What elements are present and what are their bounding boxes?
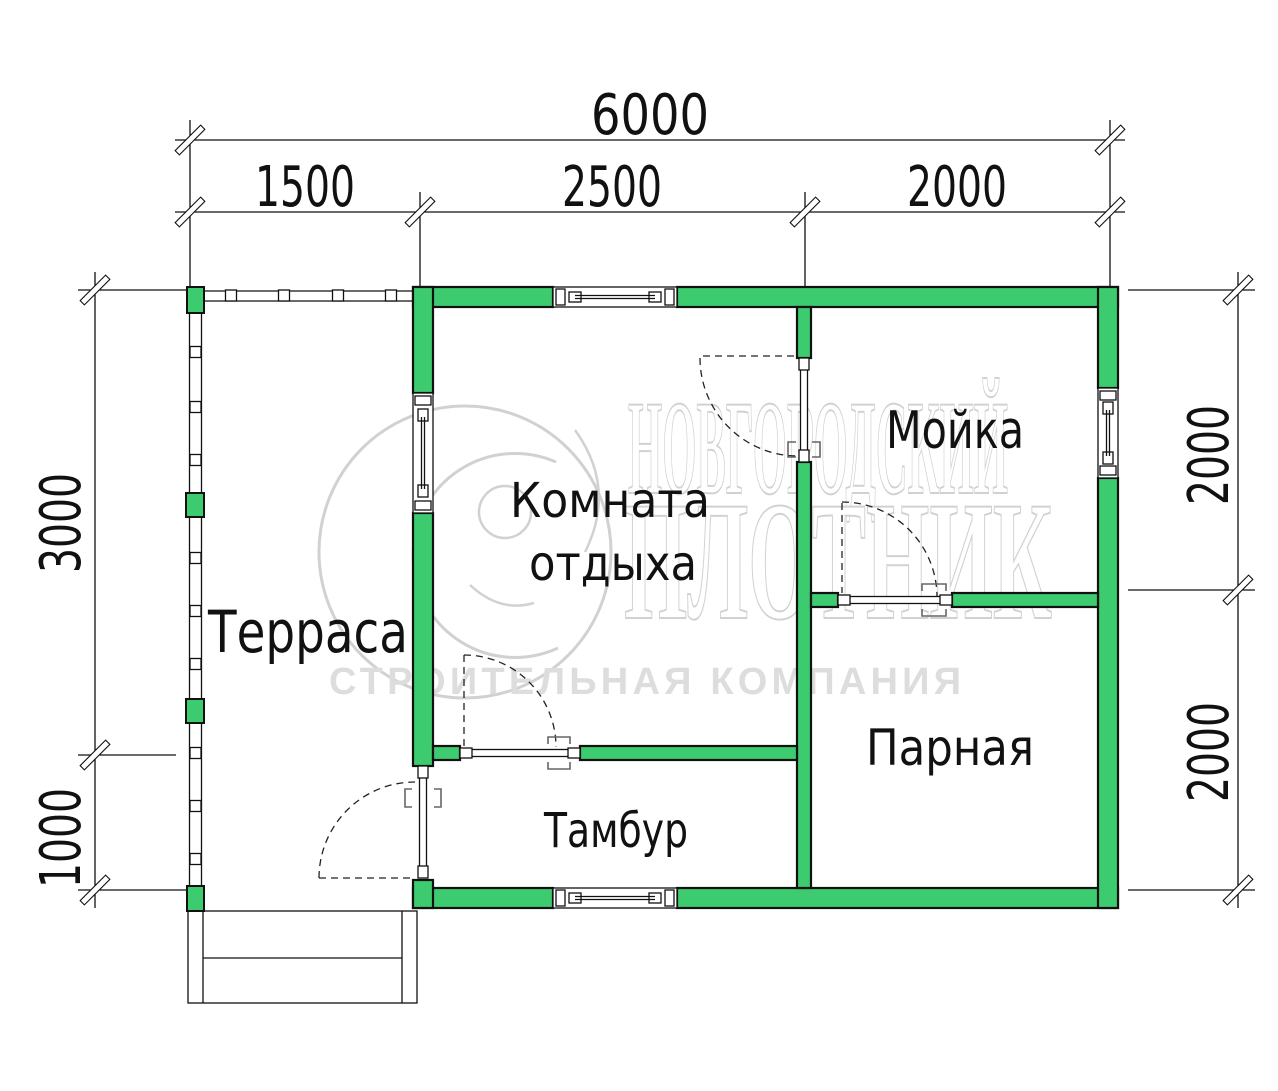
door-entry	[319, 766, 441, 878]
railing-post	[187, 886, 204, 911]
dimension-top: 6000 1500 2500 2000	[175, 83, 1125, 287]
railing-post	[186, 699, 204, 723]
dim-right-bottom: 2000	[1177, 702, 1242, 802]
room-label-lounge-line2: отдыха	[529, 536, 697, 592]
dim-top-seg2: 2500	[562, 155, 662, 220]
room-label-vestibule: Тамбур	[543, 803, 688, 859]
window-terrace-wall	[413, 393, 433, 513]
window-bottom	[553, 888, 677, 908]
window-top	[553, 287, 677, 307]
dim-left-main: 3000	[29, 473, 94, 573]
room-label-terrace: Терраса	[207, 598, 408, 666]
dim-top-seg3: 2000	[907, 155, 1007, 220]
dim-right-top: 2000	[1177, 405, 1242, 505]
dim-left-porch: 1000	[29, 788, 94, 888]
railing-post	[186, 493, 204, 517]
railing-post	[187, 287, 204, 313]
entrance-steps	[188, 911, 417, 1003]
floor-plan-page: НОВГОРОДСКИЙ ПЛОТНИК СТРОИТЕЛЬНАЯ КОМПАН…	[0, 0, 1278, 1091]
room-label-lounge-line1: Комната	[510, 473, 710, 529]
dimension-right: 2000 2000	[1128, 272, 1255, 908]
dim-top-total: 6000	[591, 83, 709, 148]
window-right-wall	[1098, 388, 1118, 478]
room-label-washroom: Мойка	[886, 401, 1024, 461]
floor-plan-drawing: НОВГОРОДСКИЙ ПЛОТНИК СТРОИТЕЛЬНАЯ КОМПАН…	[0, 0, 1278, 1091]
dimension-left: 3000 1000	[29, 272, 186, 908]
dim-top-seg1: 1500	[255, 155, 355, 220]
room-label-steam-room: Парная	[866, 719, 1034, 777]
